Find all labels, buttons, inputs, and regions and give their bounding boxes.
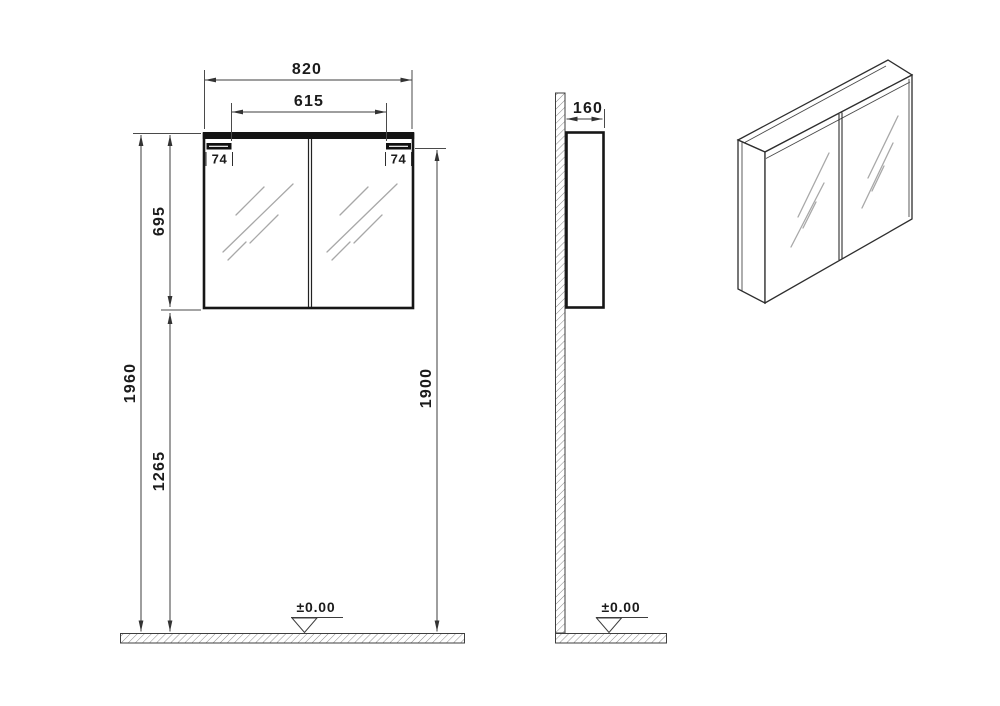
mounting-bracket-right [386, 143, 411, 150]
dim-695-label: 695 [151, 206, 168, 236]
perspective-view [738, 60, 912, 303]
dim-74-left-label: 74 [212, 152, 228, 167]
dim-615-label: 615 [294, 93, 324, 110]
dim-1960-label: 1960 [122, 363, 139, 403]
side-view: 160 ±0.00 [556, 93, 667, 643]
dim-total-height: 1960 [122, 135, 141, 632]
dim-160-label: 160 [573, 100, 603, 117]
technical-drawing-canvas: 74 74 820 [0, 0, 1000, 706]
dim-depth: 160 [567, 100, 605, 128]
dim-74-right-label: 74 [391, 152, 407, 167]
technical-drawing-page: 74 74 820 [0, 0, 1000, 706]
dim-1265-label: 1265 [151, 451, 168, 491]
front-level-symbol-triangle [292, 618, 317, 633]
side-floor-level-marker: ±0.00 [596, 599, 648, 633]
front-view: 74 74 820 [121, 61, 465, 643]
front-floor-hatch [121, 634, 465, 644]
dim-cabinet-height: 695 [151, 135, 170, 307]
side-floor-hatch [556, 634, 667, 644]
dim-820-label: 820 [292, 61, 322, 78]
front-floor-level-label: ±0.00 [297, 599, 336, 615]
dim-mounting-height: 1900 [415, 149, 446, 632]
front-floor-level-marker: ±0.00 [291, 599, 343, 633]
side-floor-level-label: ±0.00 [602, 599, 641, 615]
dim-underside-height: 1265 [151, 313, 170, 632]
side-wall-hatch [556, 93, 566, 633]
mounting-bracket-left [207, 143, 232, 150]
side-level-symbol-triangle [597, 618, 622, 633]
dim-1900-label: 1900 [418, 368, 435, 408]
side-cabinet-section [567, 133, 604, 308]
front-cabinet-top-panel [203, 132, 414, 139]
